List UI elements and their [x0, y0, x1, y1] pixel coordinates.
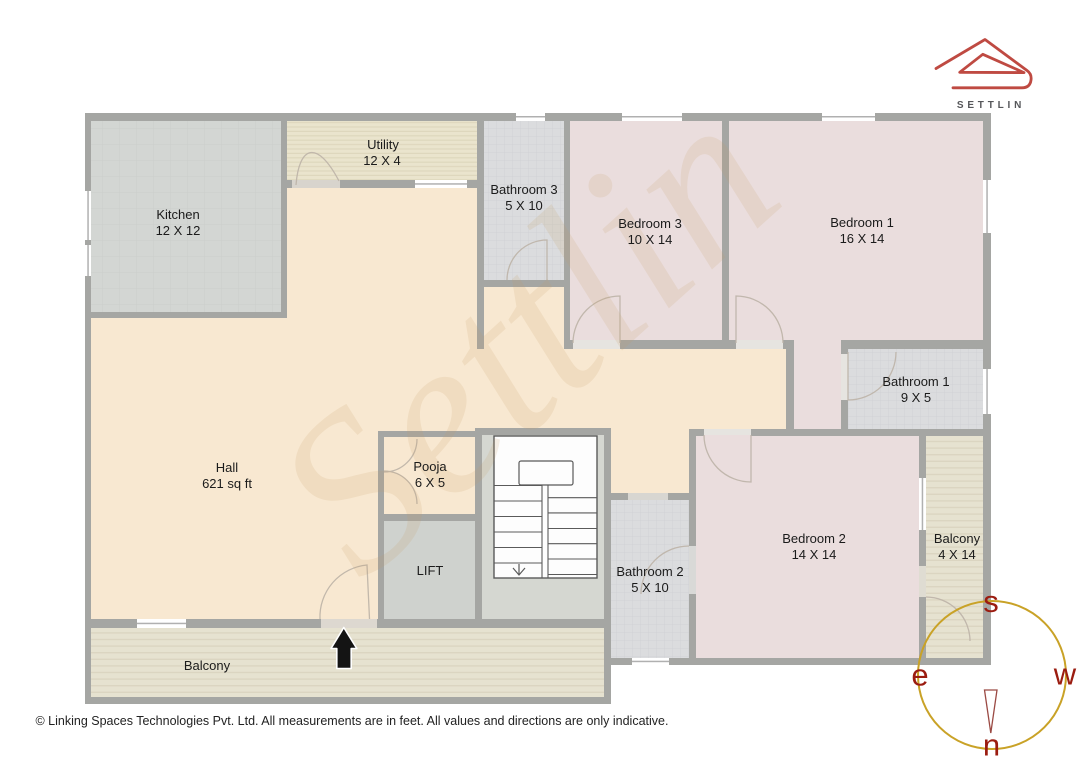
svg-text:6 X 5: 6 X 5 [415, 475, 445, 490]
svg-text:Hall: Hall [216, 460, 239, 475]
svg-text:Kitchen: Kitchen [156, 207, 199, 222]
svg-text:s: s [983, 584, 999, 619]
svg-text:© Linking Spaces Technologies: © Linking Spaces Technologies Pvt. Ltd. … [36, 714, 669, 728]
svg-text:Bedroom 3: Bedroom 3 [618, 216, 682, 231]
svg-text:Bedroom 2: Bedroom 2 [782, 531, 846, 546]
svg-text:SETTLIN: SETTLIN [957, 100, 1025, 111]
svg-text:Bathroom 2: Bathroom 2 [616, 564, 683, 579]
svg-text:Balcony: Balcony [184, 658, 231, 673]
svg-text:12 X 4: 12 X 4 [363, 153, 401, 168]
svg-text:Bathroom 1: Bathroom 1 [882, 374, 949, 389]
svg-text:16 X 14: 16 X 14 [840, 231, 885, 246]
svg-text:n: n [983, 728, 1000, 763]
svg-text:Utility: Utility [367, 137, 399, 152]
svg-text:10 X 14: 10 X 14 [628, 232, 673, 247]
svg-text:w: w [1053, 657, 1077, 692]
svg-text:5 X 10: 5 X 10 [631, 580, 669, 595]
svg-text:621 sq ft: 621 sq ft [202, 476, 252, 491]
svg-text:e: e [911, 658, 928, 693]
svg-text:Bedroom 1: Bedroom 1 [830, 215, 894, 230]
svg-text:Bathroom 3: Bathroom 3 [490, 182, 557, 197]
svg-text:4 X 14: 4 X 14 [938, 547, 976, 562]
svg-text:14 X 14: 14 X 14 [792, 547, 837, 562]
svg-text:Pooja: Pooja [413, 459, 447, 474]
svg-text:5 X 10: 5 X 10 [505, 198, 543, 213]
svg-text:LIFT: LIFT [417, 563, 444, 578]
svg-text:9 X 5: 9 X 5 [901, 390, 931, 405]
svg-text:Balcony: Balcony [934, 531, 981, 546]
svg-text:12 X 12: 12 X 12 [156, 223, 201, 238]
